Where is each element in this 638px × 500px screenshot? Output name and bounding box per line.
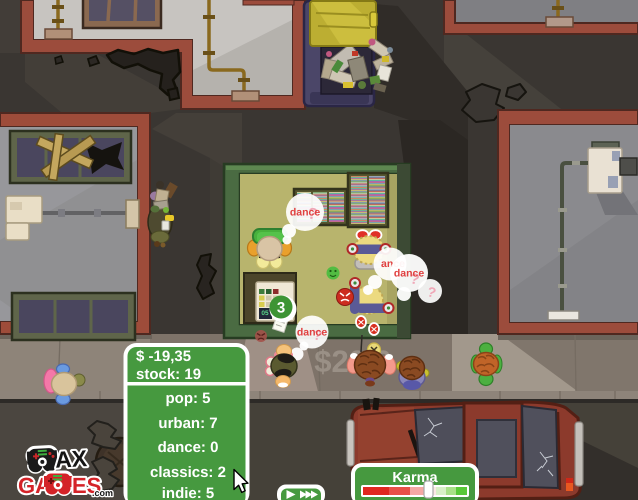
svg-text:pop: 5: pop: 5 [166,390,211,407]
svg-text:$ -19,35: $ -19,35 [136,348,191,365]
svg-text:.com: .com [92,488,113,498]
svg-text:dance: 0: dance: 0 [158,439,219,456]
svg-text:05: 05 [261,310,269,317]
svg-text:dance: dance [290,207,321,219]
svg-text:classics: 2: classics: 2 [150,464,226,481]
svg-text:urban: 7: urban: 7 [158,415,217,432]
svg-text:indie: 5: indie: 5 [162,485,215,500]
svg-text:stock: 19: stock: 19 [136,366,201,383]
svg-text:3: 3 [277,300,285,317]
svg-text:dance: dance [394,268,425,280]
svg-text:AX: AX [54,445,88,473]
svg-text:dance: dance [297,327,328,339]
